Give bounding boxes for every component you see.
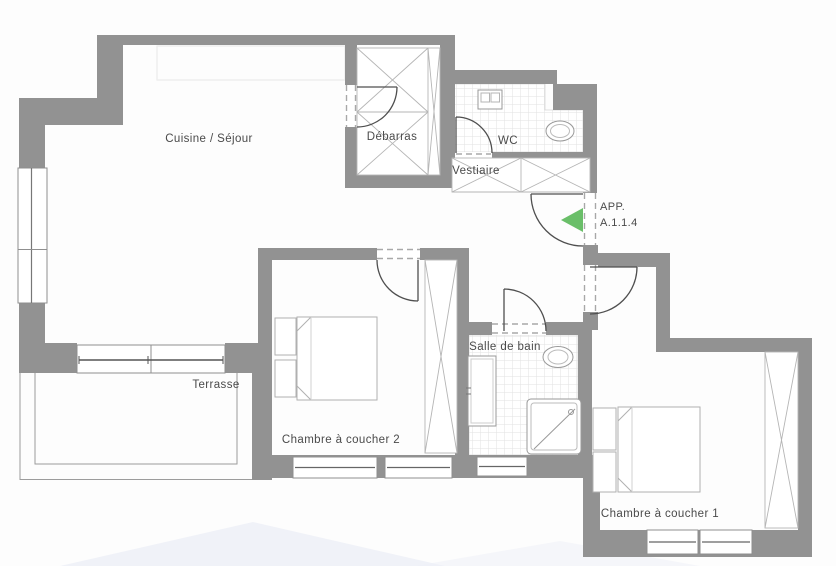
- entrance-arrow-icon: [561, 208, 583, 232]
- room-label-wc: WC: [498, 135, 518, 147]
- toilet-icon: [546, 121, 574, 141]
- floor-plan-drawing: [0, 0, 836, 566]
- nightstand-icon: [593, 408, 616, 450]
- wardrobe-icon: [425, 260, 457, 453]
- apartment-id-line2: A.1.1.4: [600, 215, 638, 231]
- sink-icon: [478, 90, 502, 109]
- wardrobe-icon: [765, 352, 798, 528]
- toilet-icon: [543, 347, 573, 368]
- bed-icon: [618, 407, 700, 492]
- closet-icon: [357, 48, 440, 175]
- apartment-id-label: APP. A.1.1.4: [600, 199, 638, 231]
- room-label-salle-de-bain: Salle de bain: [469, 341, 541, 353]
- room-label-chambre-2: Chambre à coucher 2: [282, 434, 400, 446]
- room-label-terrasse: Terrasse: [192, 379, 239, 391]
- room-label-chambre-1: Chambre à coucher 1: [601, 508, 719, 520]
- nightstand-icon: [275, 318, 296, 355]
- window-icon: [385, 457, 452, 478]
- shower-icon: [527, 399, 581, 454]
- nightstand-icon: [275, 360, 296, 397]
- room-label-debarras: Débarras: [367, 131, 418, 143]
- room-label-cuisine-sejour: Cuisine / Séjour: [165, 133, 253, 145]
- window-icon: [18, 168, 47, 303]
- sliding-door-icon: [77, 345, 225, 373]
- window-icon: [477, 457, 527, 476]
- room-label-vestiaire: Vestiaire: [452, 165, 500, 177]
- vanity-icon: [466, 356, 496, 426]
- window-icon: [700, 530, 752, 554]
- window-icon: [293, 457, 377, 478]
- bedroom1-furniture: [593, 407, 700, 492]
- bed-icon: [297, 317, 377, 400]
- floor-plan: Cuisine / Séjour Débarras WC Vestiaire T…: [0, 0, 836, 566]
- apartment-id-line1: APP.: [600, 199, 638, 215]
- nightstand-icon: [593, 452, 616, 492]
- window-icon: [647, 530, 698, 554]
- bedroom2-furniture: [275, 317, 377, 400]
- kitchen-counter-outline: [157, 46, 345, 80]
- windows: [18, 168, 752, 554]
- door-swing-icon: [377, 260, 418, 301]
